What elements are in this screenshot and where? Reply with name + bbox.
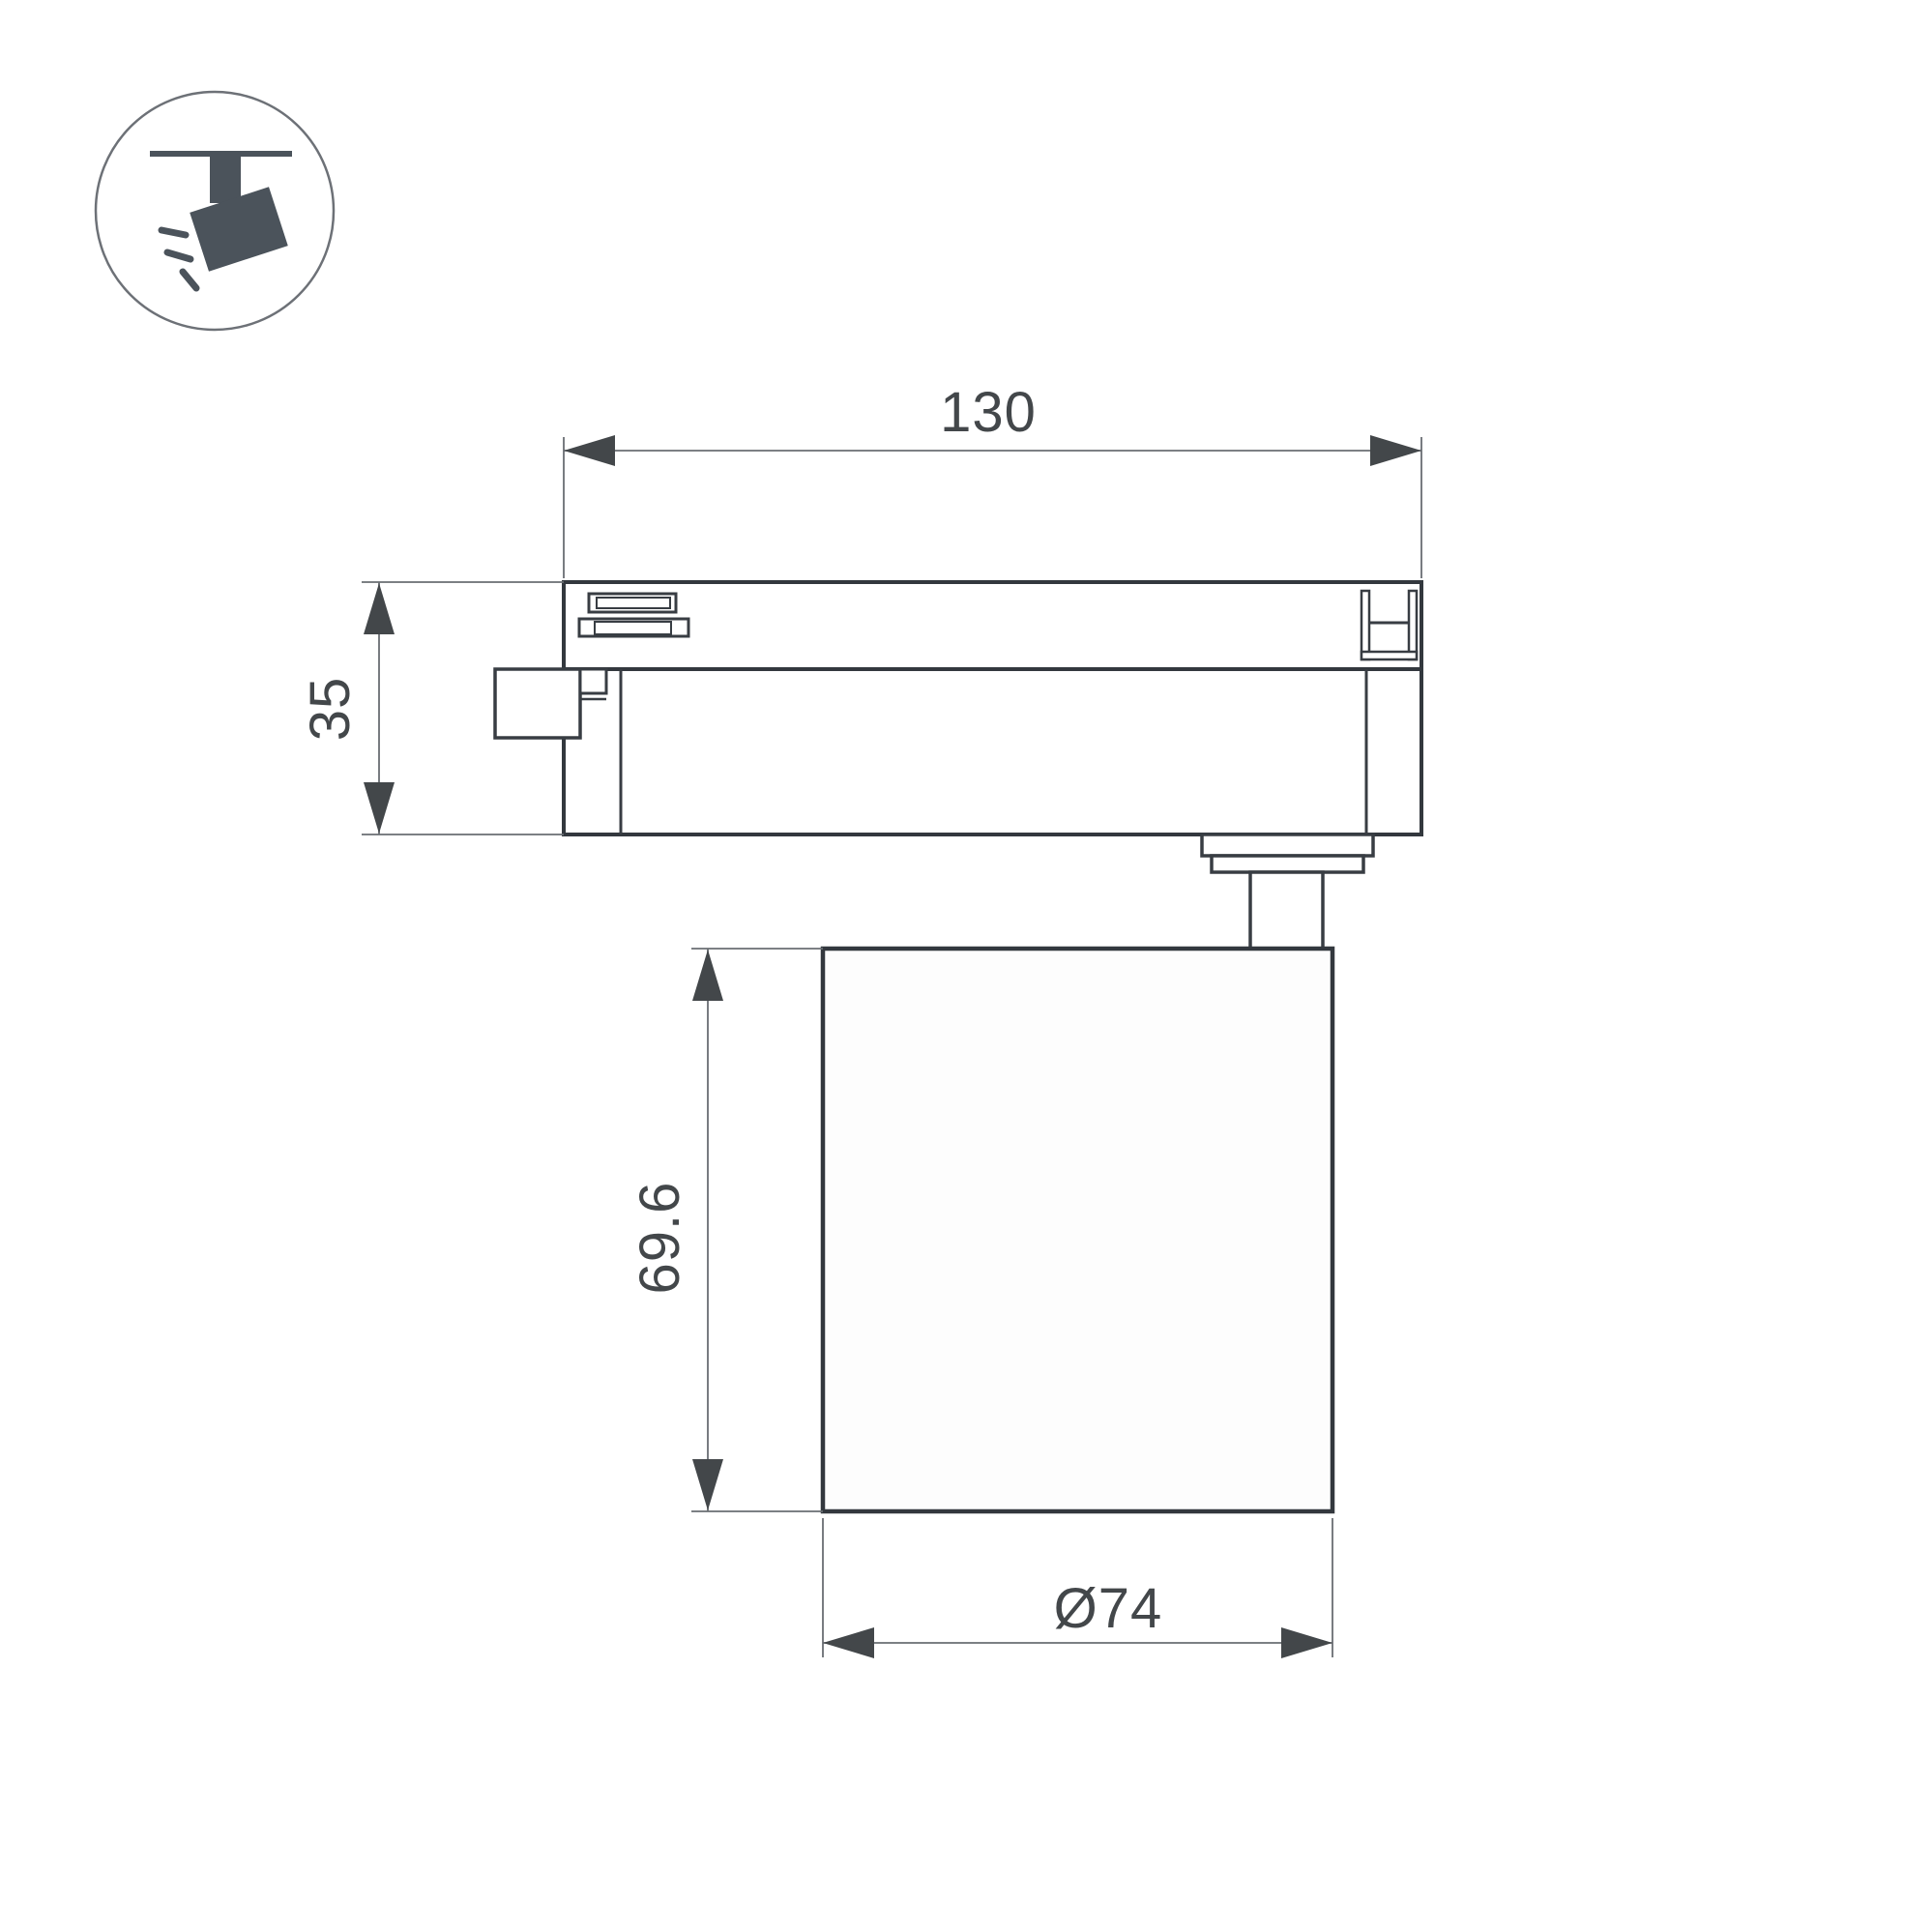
dimension-label-adapter-height: 35 [299,677,362,742]
dimension-track-width: 130 [564,381,1421,578]
arrowhead-left [823,1627,874,1658]
clip-prong-left [1361,591,1369,659]
clip-base [1361,652,1417,659]
arrowhead-right [1281,1627,1332,1658]
drawing-page: 130 35 69.6 Ø74 [0,0,1932,1932]
adapter-lower-housing [564,669,1421,834]
swivel-joint [1202,834,1373,949]
arrowhead-left [564,435,615,466]
latch-lever [495,669,580,738]
icon-stem [210,153,241,203]
icon-light-ray [161,230,186,235]
dimension-label-track-width: 130 [940,381,1037,444]
adapter-top-flange [564,582,1421,669]
arrowhead-up [692,950,723,1001]
arrowhead-up [364,583,395,634]
arrowhead-right [1370,435,1421,466]
technical-drawing: 130 35 69.6 Ø74 [0,0,1932,1932]
clip-prong-right [1409,591,1417,659]
track-spotlight-icon [96,92,334,330]
arrowhead-down [692,1459,723,1510]
swivel-plate-upper [1202,834,1373,856]
lamp-body [823,949,1332,1511]
dimension-body-diameter: Ø74 [823,1518,1332,1658]
dimension-label-body-height: 69.6 [629,1182,691,1295]
dimension-body-height: 69.6 [629,949,823,1511]
swivel-stem [1250,872,1323,949]
track-adapter [495,582,1421,834]
swivel-plate-lower [1212,856,1363,872]
dimension-label-body-diameter: Ø74 [1054,1577,1163,1640]
latch-hook [580,669,606,693]
contact-slot-upper [589,594,676,612]
arrowhead-down [364,782,395,834]
